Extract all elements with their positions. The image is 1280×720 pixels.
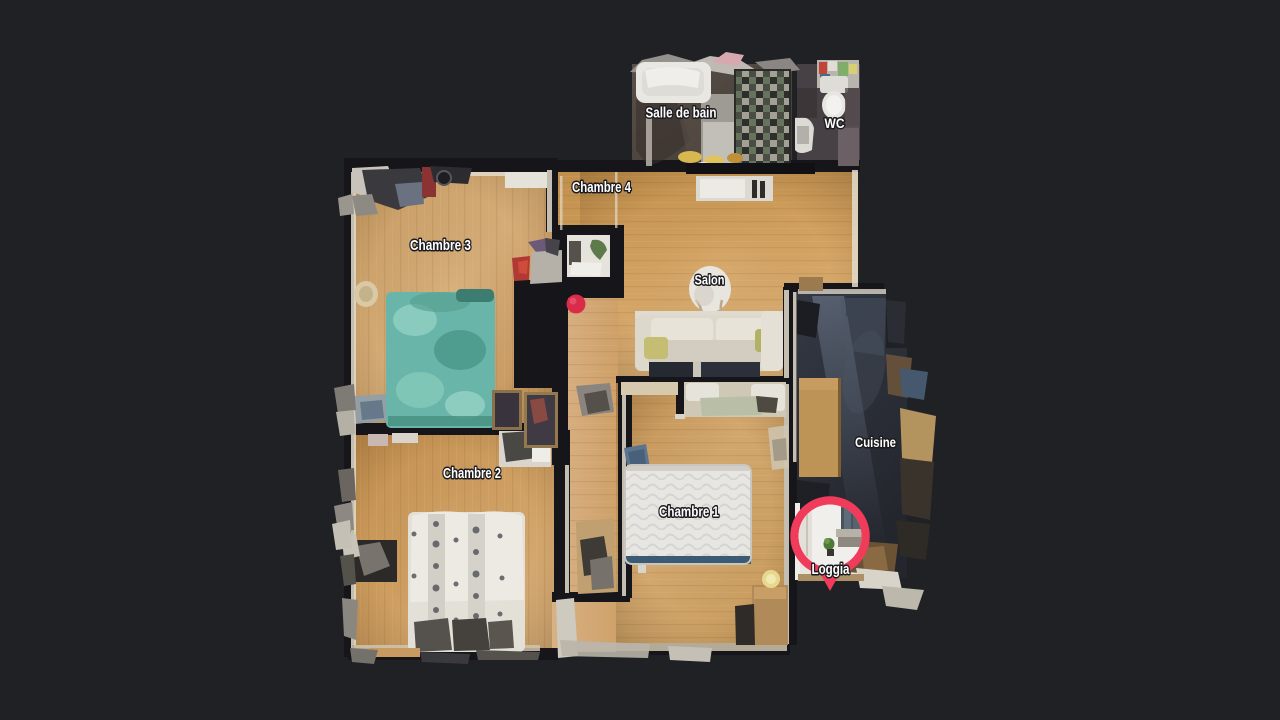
svg-text:Chambre 4: Chambre 4 xyxy=(572,180,631,196)
svg-text:Salon: Salon xyxy=(695,272,725,288)
svg-text:Cuisine: Cuisine xyxy=(855,434,896,450)
svg-text:Loggia: Loggia xyxy=(812,562,851,578)
svg-text:Chambre 1: Chambre 1 xyxy=(659,504,719,521)
svg-text:Salle de bain: Salle de bain xyxy=(646,105,717,122)
svg-text:Chambre 2: Chambre 2 xyxy=(443,465,501,482)
svg-text:Chambre 3: Chambre 3 xyxy=(410,237,471,254)
svg-text:WC: WC xyxy=(825,115,845,131)
